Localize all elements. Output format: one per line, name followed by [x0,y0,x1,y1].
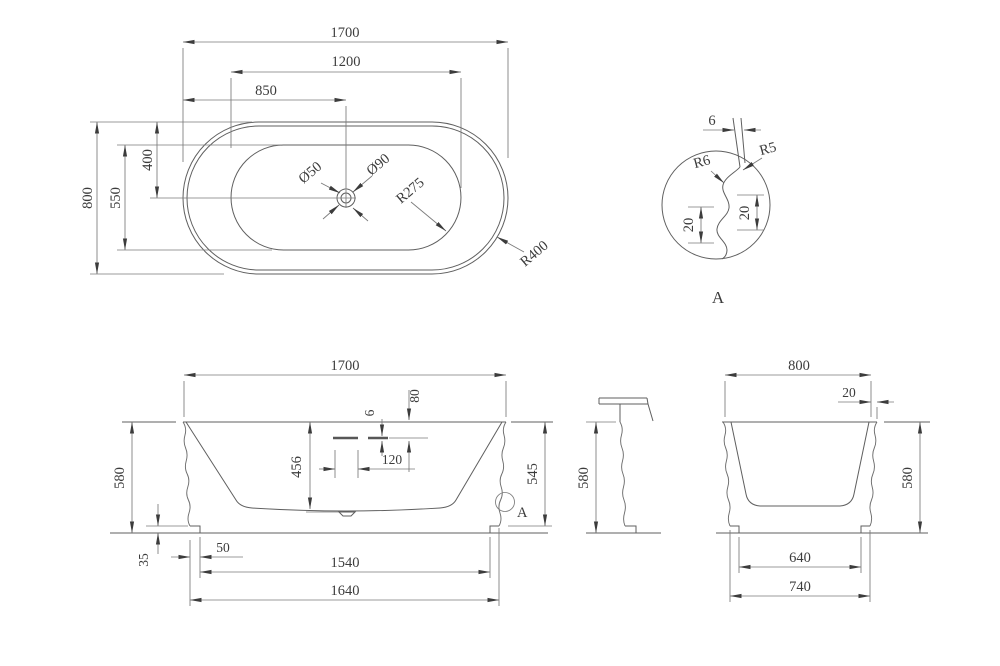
front-drain-mark [339,512,355,516]
plan-basin-width-label: 550 [108,187,124,209]
end-left-wall [723,422,730,526]
front-detail-ref-label: A [517,505,528,521]
end-dim-base-inner: 640 [739,537,861,573]
front-dim-base-inset: 50 [171,540,243,557]
front-base-inset-label: 50 [216,540,230,555]
front-section-view: 1700 6 80 120 456 580 [110,358,553,606]
detail-wall-thickness-label: 6 [708,113,715,129]
front-dim-height: 580 [112,422,132,533]
plan-drain-callouts: Ø50 Ø90 [296,151,393,221]
front-detail-marker: A [496,493,529,522]
plan-length-label: 1700 [331,25,360,41]
side-profile-view: 580 [576,398,661,533]
end-section-view: 800 20 580 640 740 [716,358,930,602]
front-base-inner-label: 1540 [331,555,360,571]
end-dim-base-outer: 740 [730,530,870,602]
bathtub-engineering-drawing: 1700 1200 850 800 550 [0,0,1000,666]
plan-basin-radius-label: R275 [393,175,427,207]
plan-basin-length-label: 1200 [332,54,361,70]
plan-width-label: 800 [80,187,96,209]
plan-drain-small-label: Ø50 [296,159,325,187]
end-height-label: 580 [900,467,916,489]
front-base-height-label: 35 [136,553,151,567]
profile-rim-edge-slant [648,404,653,421]
front-slot-width-label: 120 [382,452,403,467]
front-basin-profile [186,422,502,511]
plan-drain-y-label: 400 [140,149,156,171]
front-length-label: 1700 [331,358,360,374]
plan-view: 1700 1200 850 800 550 [80,25,552,274]
detail-wall-outer-line [733,118,740,167]
profile-dim-height: 580 [576,422,616,533]
end-dim-height: 580 [900,422,920,533]
plan-dim-basin-width: 550 [108,145,281,250]
detail-view-title: A [712,288,725,307]
detail-wall-inner-line [741,118,745,163]
profile-height-label: 580 [576,467,592,489]
front-dim-base-inner: 1540 [200,537,490,578]
plan-drain-x-label: 850 [255,83,277,99]
plan-drain-large-label: Ø90 [364,151,393,179]
end-base-outer-label: 740 [789,579,811,595]
end-right-wall [870,422,877,526]
plan-radius-callouts: R275 R400 [393,175,551,270]
front-height-to-base-label: 545 [525,463,541,485]
plan-dim-length: 1700 [183,25,508,162]
end-width-label: 800 [788,358,810,374]
detail-boundary-circle [662,151,770,259]
detail-radius-callouts: R5 R6 [692,139,778,183]
front-overflow-group: 6 80 120 [319,389,428,478]
detail-lip-radius-inner-label: R6 [692,152,712,172]
detail-dim-depth-right: 20 [737,195,764,230]
front-left-wall [183,422,190,526]
detail-lip-radius-outer-label: R5 [758,139,778,159]
plan-dim-drain-y: 400 [140,122,336,198]
detail-marker-circle [496,493,515,512]
front-basin-depth-label: 456 [289,456,305,478]
end-dim-rim-lip: 20 [838,385,894,419]
detail-depth-right-label: 20 [737,206,753,221]
front-overflow-drop-label: 80 [407,389,422,403]
front-dim-height-to-base: 545 [508,422,552,526]
end-rim-lip-label: 20 [842,385,856,400]
profile-wall-wave [620,422,625,526]
end-basin-profile [731,422,869,506]
detail-dim-depth-left: 20 [681,207,714,243]
detail-a-view: 6 R5 R6 20 20 A [662,113,778,307]
detail-dim-wall-thickness: 6 [703,113,761,130]
front-dim-length: 1700 [184,358,506,417]
front-slot-height-label: 6 [362,409,377,416]
plan-corner-radius-label: R400 [517,238,551,270]
detail-depth-left-label: 20 [681,218,697,233]
end-base-inner-label: 640 [789,550,811,566]
front-height-label: 580 [112,467,128,489]
front-dim-basin-depth: 456 [289,422,310,509]
profile-base-step [625,526,636,533]
front-base-outer-label: 1640 [331,583,360,599]
end-base-outline [730,526,870,533]
technical-drawing-sheet: 1700 1200 850 800 550 [0,0,1000,666]
front-base-outline [190,526,499,533]
